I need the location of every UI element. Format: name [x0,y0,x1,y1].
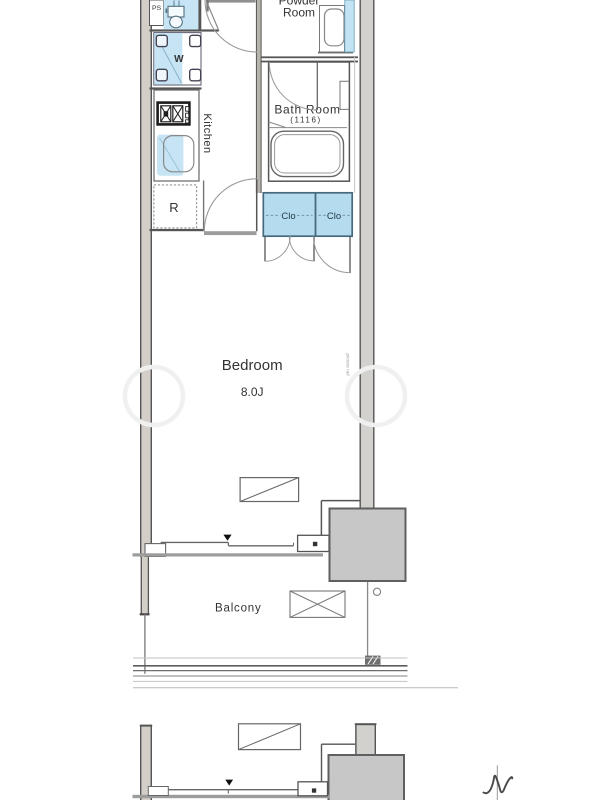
svg-text:Kitchen: Kitchen [201,113,213,153]
svg-text:PS: PS [152,5,162,12]
svg-text:Balcony: Balcony [215,603,262,615]
svg-text:Room: Room [283,5,315,19]
svg-text:Bedroom: Bedroom [222,357,283,374]
svg-text:picture rail: picture rail [344,353,350,375]
svg-text:W: W [174,54,184,65]
svg-text:Clo: Clo [281,211,295,222]
svg-text:(1116): (1116) [290,115,322,124]
svg-text:R: R [169,200,178,215]
svg-text:Clo: Clo [327,211,341,222]
svg-text:8.0J: 8.0J [241,385,264,399]
